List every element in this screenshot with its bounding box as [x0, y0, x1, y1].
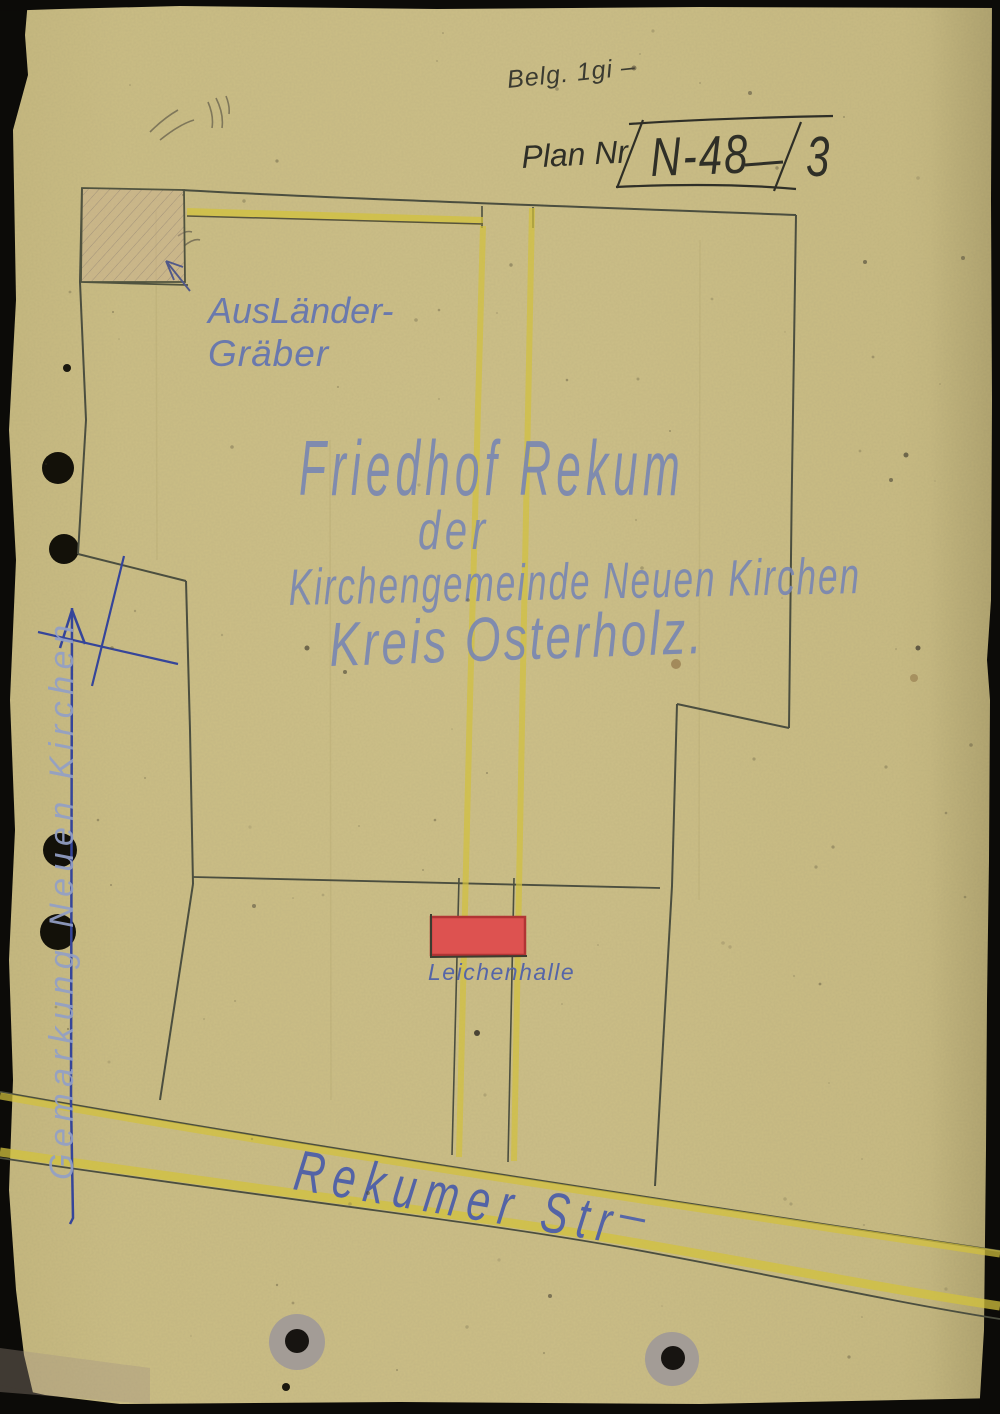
svg-text:Plan Nr: Plan Nr: [520, 133, 630, 175]
svg-text:Kreis Osterholz.: Kreis Osterholz.: [328, 597, 705, 679]
svg-text:Leichenhalle: Leichenhalle: [428, 959, 575, 985]
svg-text:3: 3: [806, 125, 830, 189]
svg-text:Friedhof Rekum: Friedhof Rekum: [299, 426, 685, 512]
svg-text:AusLänder-: AusLänder-: [206, 290, 393, 331]
svg-text:Gräber: Gräber: [208, 333, 330, 374]
svg-text:der: der: [418, 501, 490, 562]
svg-text:N-48: N-48: [649, 124, 750, 188]
svg-text:Gemarkung Neuen Kirchen: Gemarkung Neuen Kirchen: [43, 618, 81, 1180]
